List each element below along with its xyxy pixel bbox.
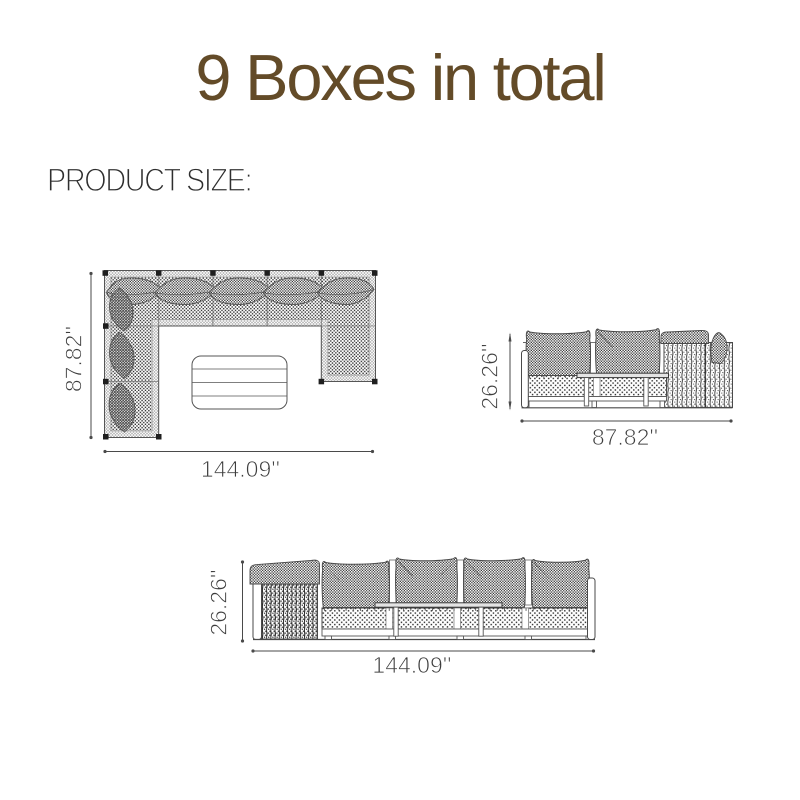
svg-text:87.82'': 87.82'': [61, 326, 87, 392]
svg-text:PRODUCT SIZE:: PRODUCT SIZE:: [47, 163, 251, 199]
svg-text:26.26'': 26.26'': [206, 569, 232, 635]
svg-text:26.26'': 26.26'': [477, 343, 503, 409]
svg-text:144.09'': 144.09'': [201, 456, 280, 482]
svg-text:144.09'': 144.09'': [372, 652, 451, 678]
svg-text:87.82'': 87.82'': [592, 424, 658, 450]
